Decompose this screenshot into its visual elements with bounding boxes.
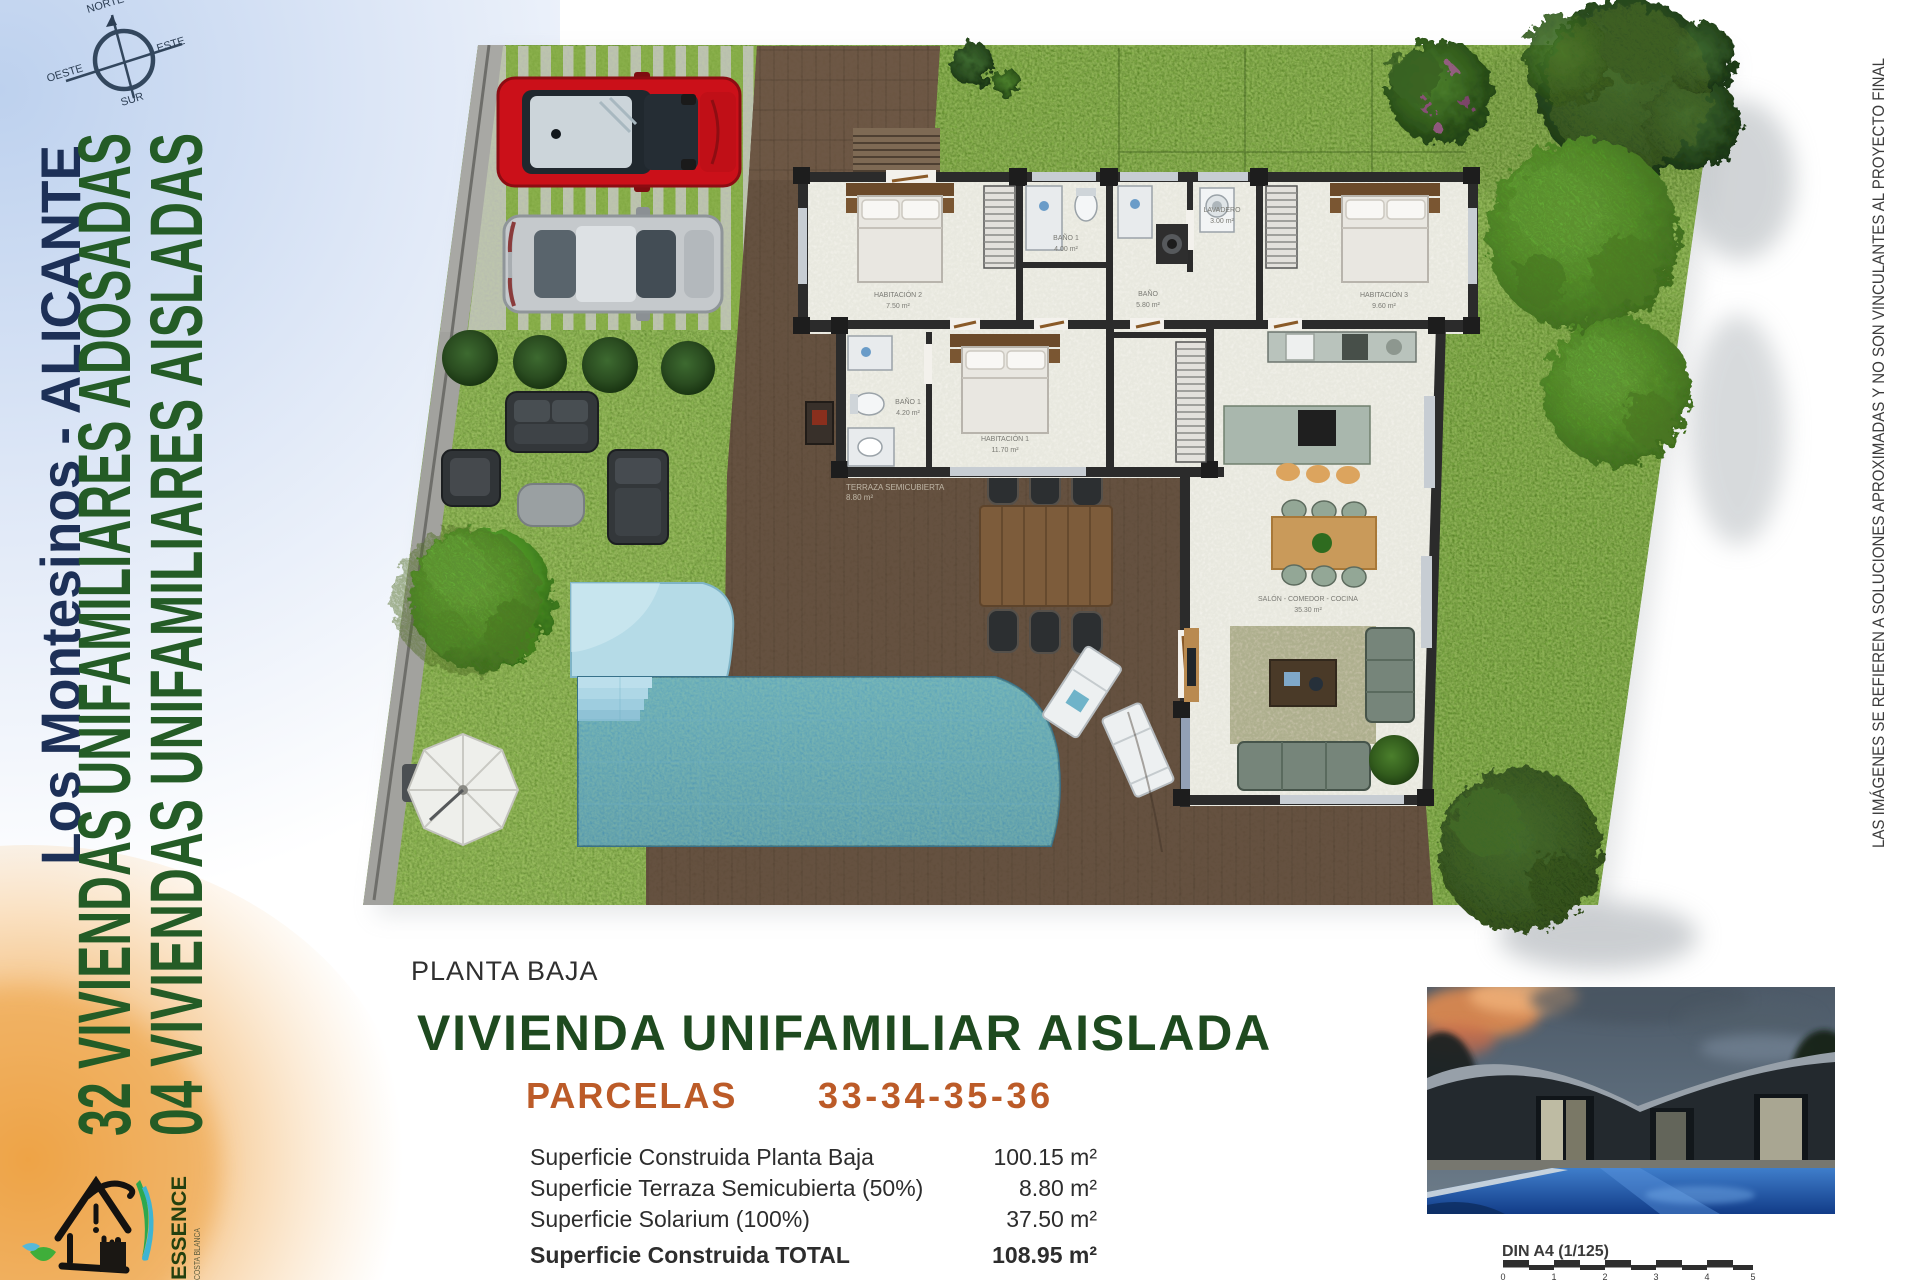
- svg-text:9.60 m²: 9.60 m²: [1372, 303, 1396, 310]
- svg-text:PARCELAS: PARCELAS: [526, 1075, 737, 1116]
- svg-text:HABITACIÓN 1: HABITACIÓN 1: [981, 434, 1029, 443]
- svg-text:108.95 m²: 108.95 m²: [992, 1242, 1097, 1268]
- svg-text:7.50 m²: 7.50 m²: [886, 303, 910, 310]
- svg-text:11.70 m²: 11.70 m²: [991, 447, 1019, 454]
- svg-text:BAÑO 1: BAÑO 1: [1053, 233, 1079, 242]
- svg-text:0: 0: [1500, 1272, 1505, 1280]
- svg-text:4.00 m²: 4.00 m²: [1054, 246, 1078, 253]
- svg-text:LAS IMÁGENES SE REFIEREN A SOL: LAS IMÁGENES SE REFIEREN A SOLUCIONES AP…: [1869, 58, 1888, 848]
- svg-text:3.00 m²: 3.00 m²: [1210, 218, 1234, 225]
- svg-text:33-34-35-36: 33-34-35-36: [818, 1075, 1054, 1116]
- svg-text:TERRAZA SEMICUBIERTA: TERRAZA SEMICUBIERTA: [846, 483, 945, 492]
- svg-text:4: 4: [1704, 1272, 1709, 1280]
- svg-text:PLANTA BAJA: PLANTA BAJA: [411, 956, 599, 986]
- svg-text:SALÓN - COMEDOR - COCINA: SALÓN - COMEDOR - COCINA: [1258, 594, 1358, 603]
- svg-text:32 VIVIENDAS UNIFAMILIARES ADO: 32 VIVIENDAS UNIFAMILIARES ADOSADAS: [63, 133, 146, 1136]
- svg-text:37.50 m²: 37.50 m²: [1006, 1206, 1097, 1232]
- svg-text:LAVADERO: LAVADERO: [1203, 207, 1241, 214]
- svg-text:2: 2: [1602, 1272, 1607, 1280]
- svg-text:35.30 m²: 35.30 m²: [1294, 607, 1322, 614]
- svg-text:1: 1: [1551, 1272, 1556, 1280]
- svg-text:3: 3: [1653, 1272, 1658, 1280]
- svg-text:BAÑO 1: BAÑO 1: [895, 397, 921, 406]
- svg-text:BAÑO: BAÑO: [1138, 289, 1158, 298]
- svg-text:Superficie Terraza Semicubiert: Superficie Terraza Semicubierta (50%): [530, 1175, 923, 1201]
- svg-text:4.20 m²: 4.20 m²: [896, 410, 920, 417]
- svg-text:ESSENCE: ESSENCE: [168, 1176, 191, 1280]
- svg-text:VIVIENDA UNIFAMILIAR AISLADA: VIVIENDA UNIFAMILIAR AISLADA: [417, 1005, 1272, 1061]
- svg-text:Superficie Construida Planta B: Superficie Construida Planta Baja: [530, 1144, 874, 1170]
- svg-text:8.80 m²: 8.80 m²: [846, 493, 873, 502]
- svg-text:HABITACIÓN 3: HABITACIÓN 3: [1360, 290, 1408, 299]
- svg-text:Superficie Construida TOTAL: Superficie Construida TOTAL: [530, 1242, 850, 1268]
- svg-text:5.80 m²: 5.80 m²: [1136, 302, 1160, 309]
- svg-text:5: 5: [1750, 1272, 1755, 1280]
- svg-text:COSTA BLANCA: COSTA BLANCA: [193, 1227, 202, 1280]
- svg-text:100.15 m²: 100.15 m²: [993, 1144, 1097, 1170]
- svg-text:04 VIVIENDAS UNIFAMILIARES AIS: 04 VIVIENDAS UNIFAMILIARES AISLADAS: [135, 133, 218, 1136]
- svg-text:DIN A4 (1/125): DIN A4 (1/125): [1502, 1243, 1609, 1260]
- svg-text:Superficie Solarium (100%): Superficie Solarium (100%): [530, 1206, 810, 1232]
- svg-text:8.80 m²: 8.80 m²: [1019, 1175, 1097, 1201]
- svg-text:HABITACIÓN 2: HABITACIÓN 2: [874, 290, 922, 299]
